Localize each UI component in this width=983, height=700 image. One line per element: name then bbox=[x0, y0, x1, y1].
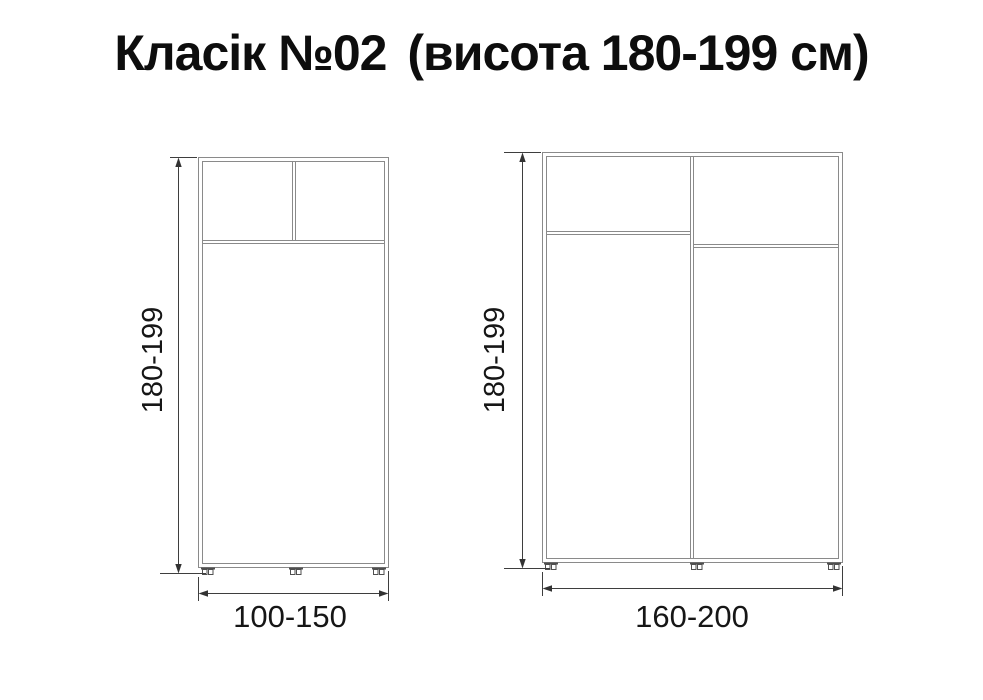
wardrobe-foot-icon bbox=[827, 564, 841, 570]
right-height-label: 180-199 bbox=[480, 280, 510, 440]
arrow-down-icon bbox=[519, 559, 525, 569]
left-wardrobe-top-divider bbox=[293, 162, 296, 241]
left-wardrobe-feet bbox=[201, 569, 386, 575]
arrow-down-icon bbox=[175, 564, 181, 574]
left-height-label: 180-199 bbox=[138, 280, 168, 440]
wardrobe-foot-icon bbox=[372, 569, 386, 575]
arrow-left-icon bbox=[543, 585, 553, 591]
arrow-up-icon bbox=[519, 153, 525, 163]
left-wardrobe-outline bbox=[199, 158, 389, 568]
wardrobe-foot-icon bbox=[289, 569, 303, 575]
right-width-label: 160-200 bbox=[582, 597, 802, 637]
arrow-left-icon bbox=[199, 590, 209, 596]
right-wardrobe-outline bbox=[543, 153, 843, 563]
left-width-label: 100-150 bbox=[180, 597, 400, 637]
arrow-up-icon bbox=[175, 158, 181, 168]
right-width-dimension bbox=[543, 566, 843, 596]
right-wardrobe-center-divider bbox=[691, 157, 694, 559]
left-wardrobe-shelf bbox=[203, 241, 385, 244]
arrow-right-icon bbox=[379, 590, 389, 596]
wardrobe-foot-icon bbox=[690, 564, 704, 570]
right-wardrobe-right-shelf bbox=[694, 245, 839, 248]
right-wardrobe-left-shelf bbox=[547, 232, 691, 235]
right-wardrobe-feet bbox=[544, 564, 841, 570]
arrow-right-icon bbox=[833, 585, 843, 591]
wardrobe-dimension-diagram: Класік №02 (висота 180-199 см) bbox=[0, 0, 983, 700]
